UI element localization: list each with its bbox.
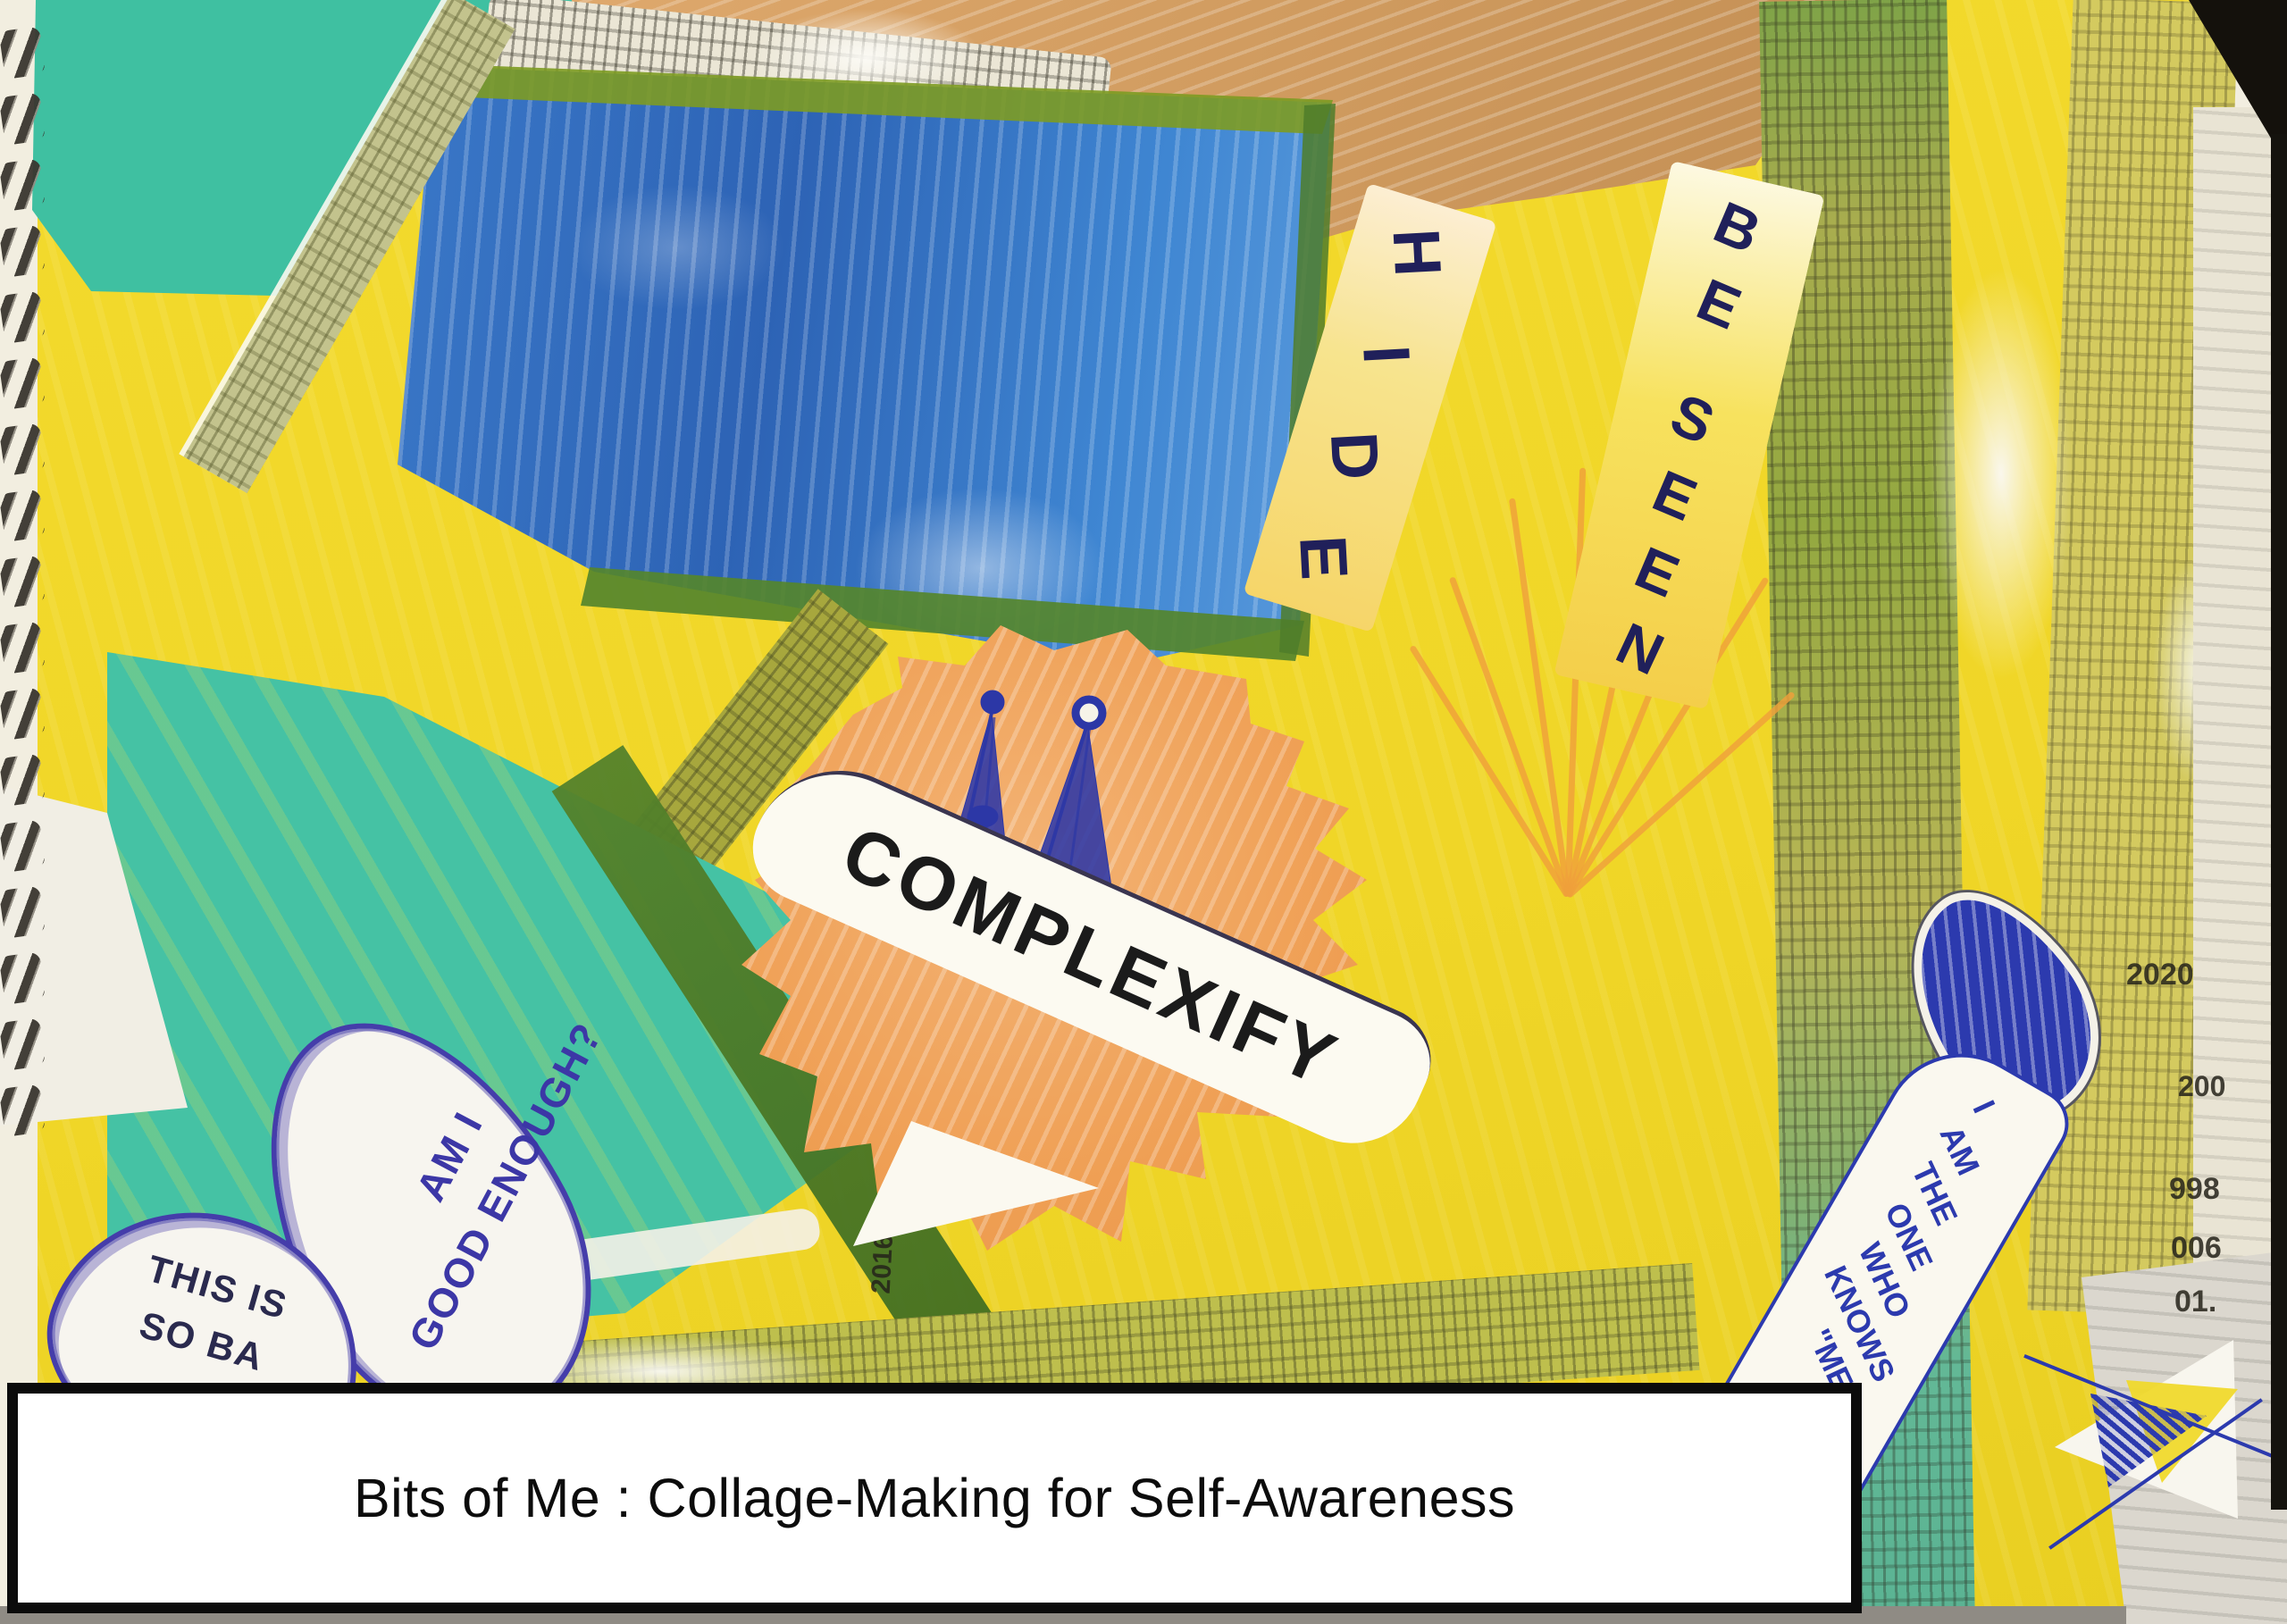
spiral-coil	[0, 621, 46, 674]
caption-bar: Bits of Me : Collage-Making for Self-Awa…	[7, 1383, 1862, 1613]
spiral-coil	[0, 885, 46, 939]
white-paint-gap-right	[1930, 268, 2073, 679]
spiral-coil	[0, 356, 46, 410]
be-seen-letter: S	[1662, 380, 1724, 457]
newspaper-fragment-2016: 2016	[867, 1234, 900, 1294]
newspaper-fragment-998: 998	[2169, 1172, 2220, 1207]
spiral-binding	[2, 29, 43, 1134]
newspaper-fragment-01: 01.	[2174, 1285, 2216, 1319]
hide-letter: D	[1316, 431, 1395, 482]
hide-letter: H	[1378, 227, 1457, 279]
spiral-coil	[0, 489, 46, 542]
newspaper-fragment-2020: 2020	[2126, 958, 2194, 992]
collage-photo: 2016 2020 200 998 006 01. H I D E B E S …	[0, 0, 2287, 1624]
hide-letter: E	[1286, 533, 1363, 582]
spiral-coil	[0, 1017, 46, 1071]
be-seen-letter: E	[1626, 533, 1688, 611]
spiral-coil	[0, 687, 46, 741]
spiral-coil	[0, 26, 46, 80]
spiral-coil	[0, 158, 46, 212]
spiral-coil	[0, 555, 46, 608]
hide-letter: I	[1348, 343, 1425, 365]
be-seen-letter: E	[1688, 264, 1751, 342]
be-seen-letter: N	[1606, 608, 1673, 688]
spiral-coil	[0, 224, 46, 278]
newspaper-fragment-200: 200	[2178, 1070, 2225, 1103]
be-seen-letter: B	[1705, 188, 1771, 267]
photo-background-sliver	[2271, 134, 2287, 1510]
page-edge-right	[2193, 107, 2278, 1295]
spiral-coil	[0, 92, 46, 146]
caption-text: Bits of Me : Collage-Making for Self-Awa…	[354, 1467, 1515, 1529]
spiral-coil	[0, 753, 46, 807]
newspaper-fragment-006: 006	[2171, 1231, 2222, 1266]
spiral-coil	[0, 290, 46, 344]
be-seen-letter: E	[1644, 456, 1706, 534]
spiral-coil	[0, 819, 46, 873]
spiral-coil	[0, 423, 46, 476]
spiral-coil	[0, 951, 46, 1005]
spiral-coil	[0, 1084, 46, 1137]
ribbon-word: I	[1965, 1095, 2003, 1119]
